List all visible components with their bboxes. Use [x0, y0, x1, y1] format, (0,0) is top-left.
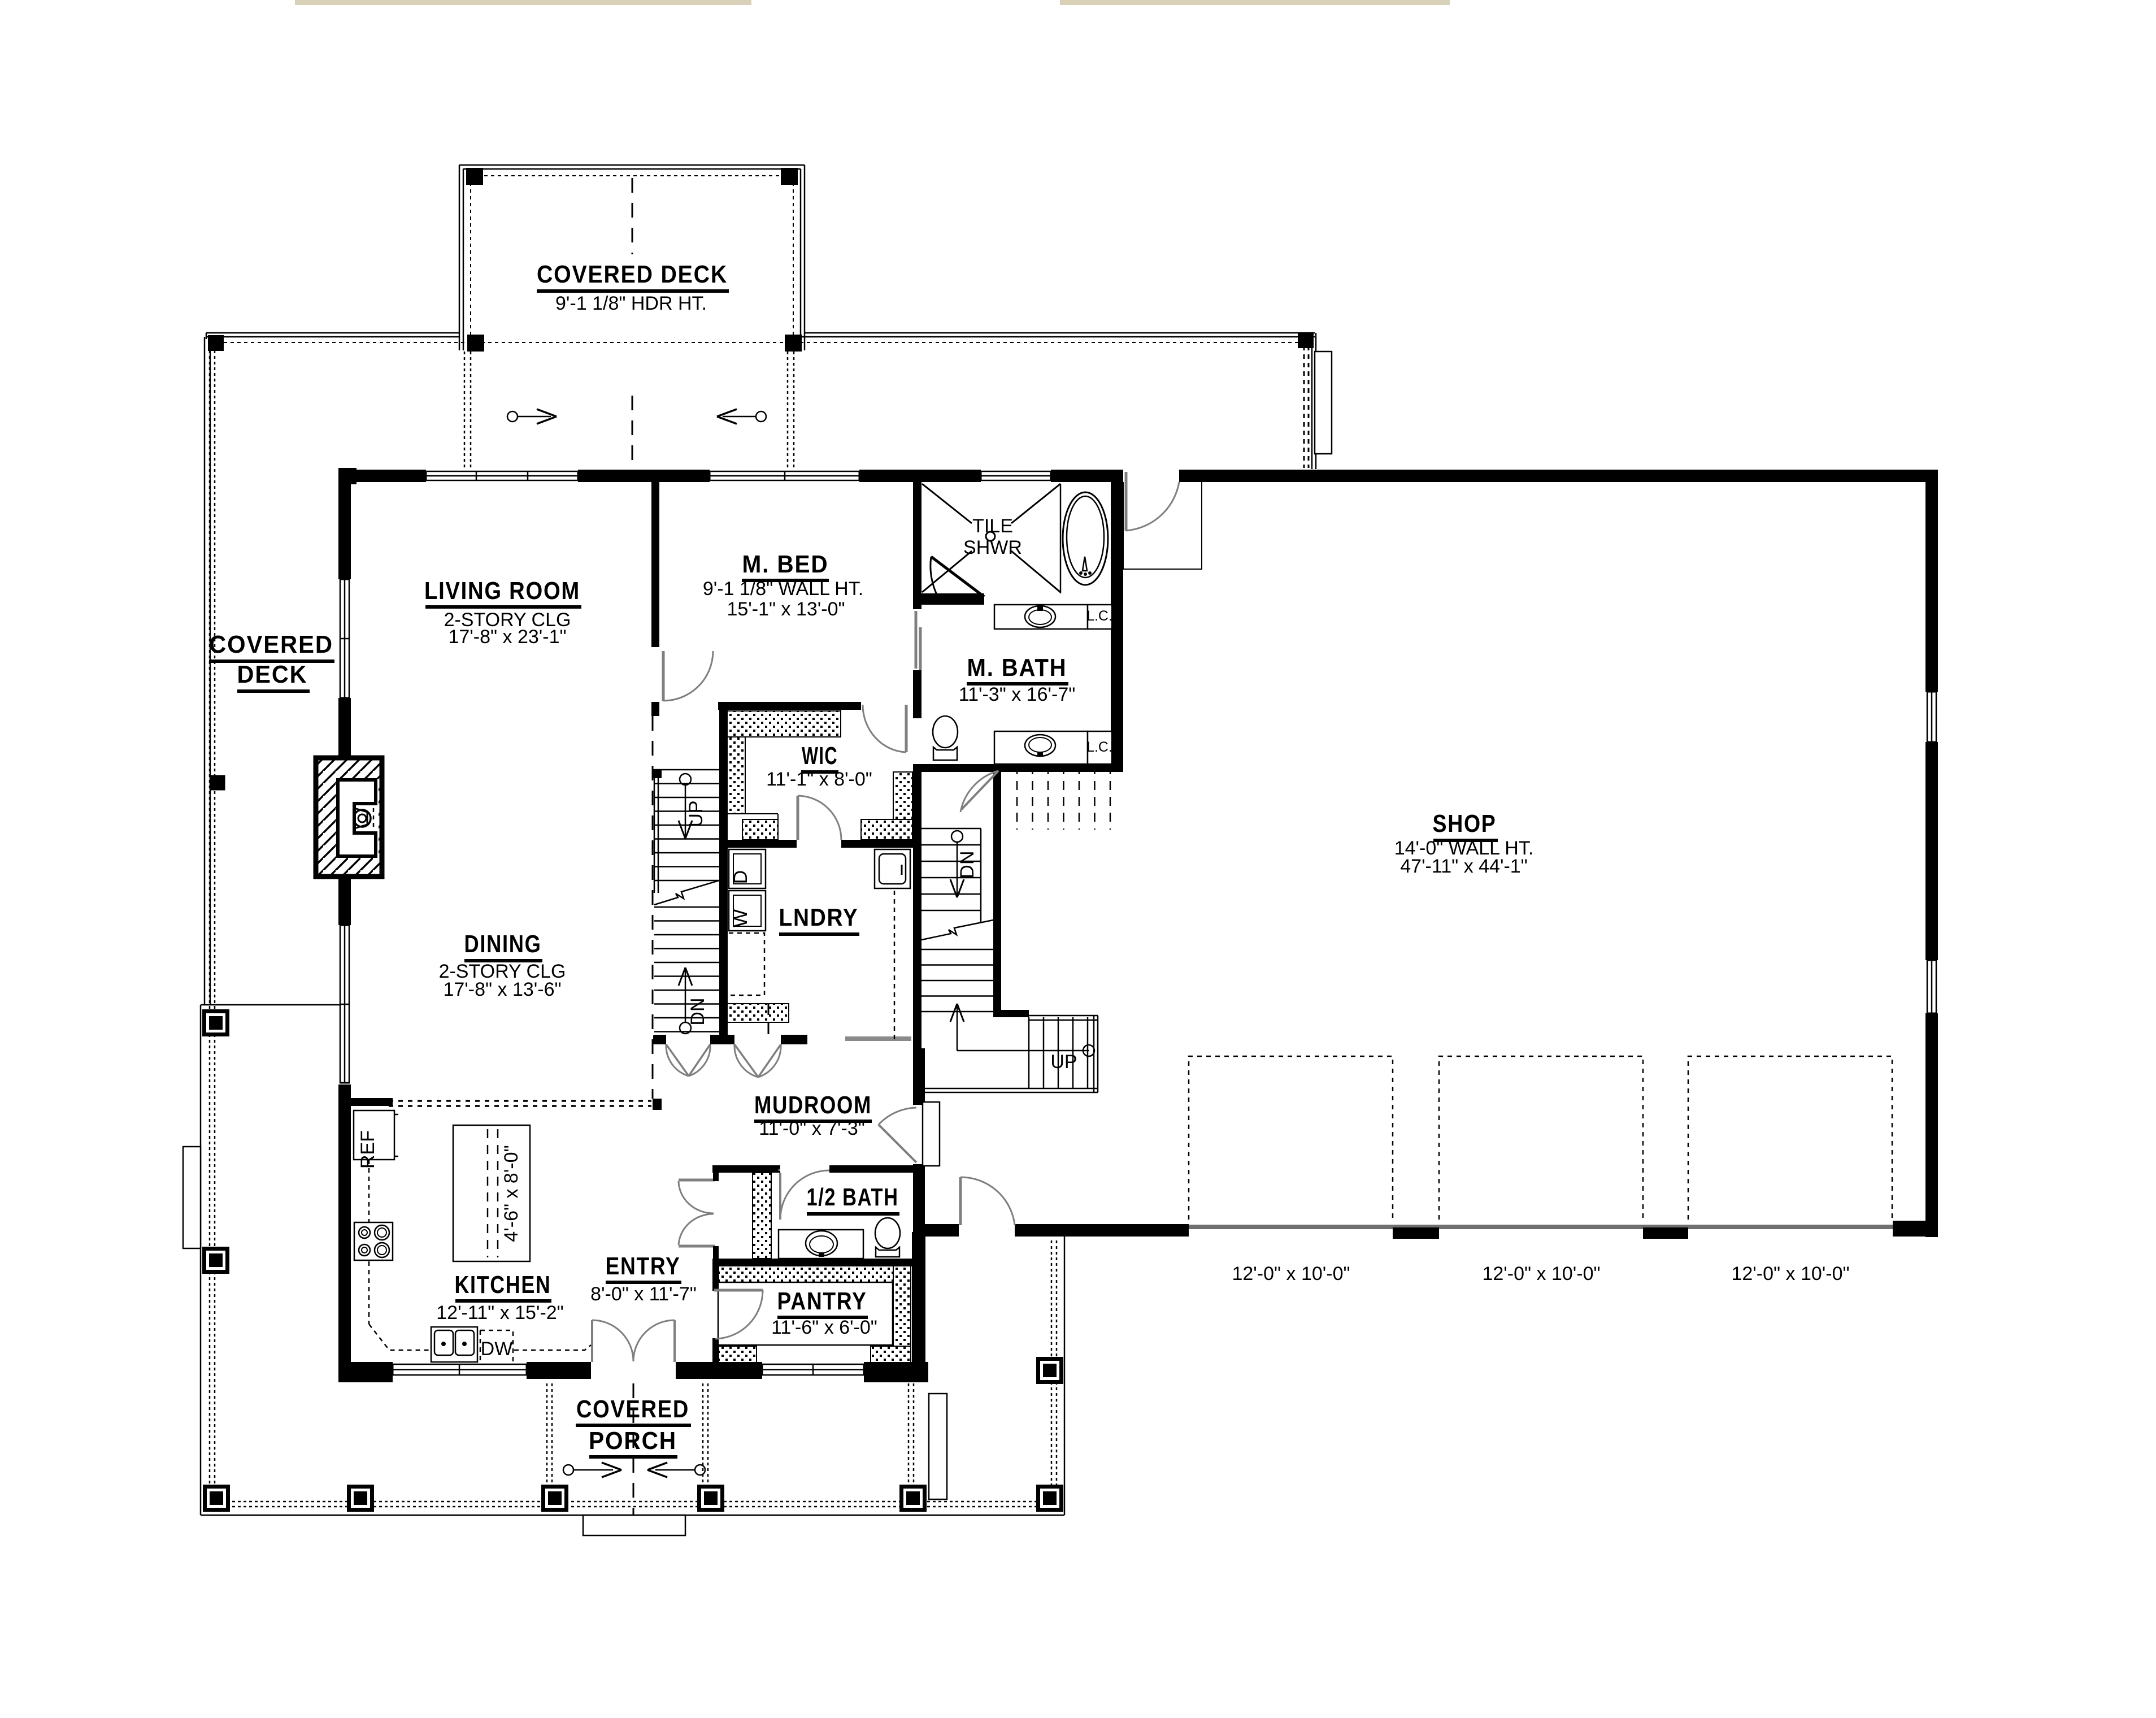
svg-text:17'-8" x 13'-6": 17'-8" x 13'-6" — [443, 979, 561, 1000]
svg-text:SHOP: SHOP — [1433, 810, 1497, 838]
svg-text:L.C.: L.C. — [1086, 608, 1112, 624]
svg-text:PORCH: PORCH — [589, 1427, 677, 1455]
svg-text:PANTRY: PANTRY — [777, 1287, 867, 1315]
svg-text:15'-1" x 13'-0": 15'-1" x 13'-0" — [727, 598, 845, 620]
svg-text:ENTRY: ENTRY — [606, 1252, 681, 1280]
svg-text:DN: DN — [687, 997, 708, 1025]
svg-text:DW: DW — [481, 1338, 513, 1360]
svg-text:M. BED: M. BED — [742, 550, 829, 578]
svg-text:D: D — [730, 870, 751, 884]
svg-text:17'-8" x 23'-1": 17'-8" x 23'-1" — [448, 626, 566, 648]
svg-text:12'-0" x 10'-0": 12'-0" x 10'-0" — [1482, 1263, 1600, 1285]
svg-text:11'-6" x 6'-0": 11'-6" x 6'-0" — [771, 1317, 877, 1338]
svg-text:REF: REF — [357, 1130, 379, 1169]
svg-text:11'-0" x 7'-3": 11'-0" x 7'-3" — [759, 1118, 865, 1139]
svg-text:47'-11" x 44'-1": 47'-11" x 44'-1" — [1400, 856, 1528, 877]
svg-text:9'-1 1/8" WALL HT.: 9'-1 1/8" WALL HT. — [703, 578, 863, 600]
svg-text:LNDRY: LNDRY — [779, 904, 859, 931]
svg-text:8'-0" x 11'-7": 8'-0" x 11'-7" — [590, 1283, 697, 1305]
svg-text:SHWR: SHWR — [963, 537, 1022, 558]
svg-text:W: W — [730, 909, 751, 927]
svg-text:4'-6" x 8'-0": 4'-6" x 8'-0" — [501, 1145, 522, 1242]
svg-text:L.C.: L.C. — [1086, 739, 1112, 755]
svg-text:9'-1 1/8" HDR HT.: 9'-1 1/8" HDR HT. — [555, 293, 707, 314]
svg-text:WIC: WIC — [802, 742, 838, 770]
svg-text:MUDROOM: MUDROOM — [754, 1091, 872, 1119]
svg-text:11'-3" x 16'-7": 11'-3" x 16'-7" — [959, 684, 1076, 705]
svg-text:DINING: DINING — [464, 930, 542, 958]
svg-text:12'-11" x 15'-2": 12'-11" x 15'-2" — [436, 1302, 564, 1324]
svg-text:12'-0" x 10'-0": 12'-0" x 10'-0" — [1232, 1263, 1350, 1285]
svg-text:1/2 BATH: 1/2 BATH — [807, 1183, 899, 1211]
svg-text:DN: DN — [957, 851, 978, 878]
svg-text:11'-1" x 8'-0": 11'-1" x 8'-0" — [766, 769, 872, 790]
svg-text:UP: UP — [1050, 1051, 1077, 1073]
svg-text:LIVING ROOM: LIVING ROOM — [424, 577, 580, 605]
svg-text:UP: UP — [685, 800, 707, 827]
svg-text:KITCHEN: KITCHEN — [455, 1271, 551, 1299]
svg-text:COVERED: COVERED — [576, 1395, 689, 1423]
svg-text:COVERED DECK: COVERED DECK — [537, 261, 728, 288]
svg-text:12'-0" x 10'-0": 12'-0" x 10'-0" — [1731, 1263, 1849, 1285]
svg-text:TILE: TILE — [972, 515, 1013, 537]
svg-text:M. BATH: M. BATH — [967, 654, 1067, 682]
svg-text:DECK: DECK — [237, 661, 308, 688]
svg-text:COVERED: COVERED — [209, 631, 333, 658]
